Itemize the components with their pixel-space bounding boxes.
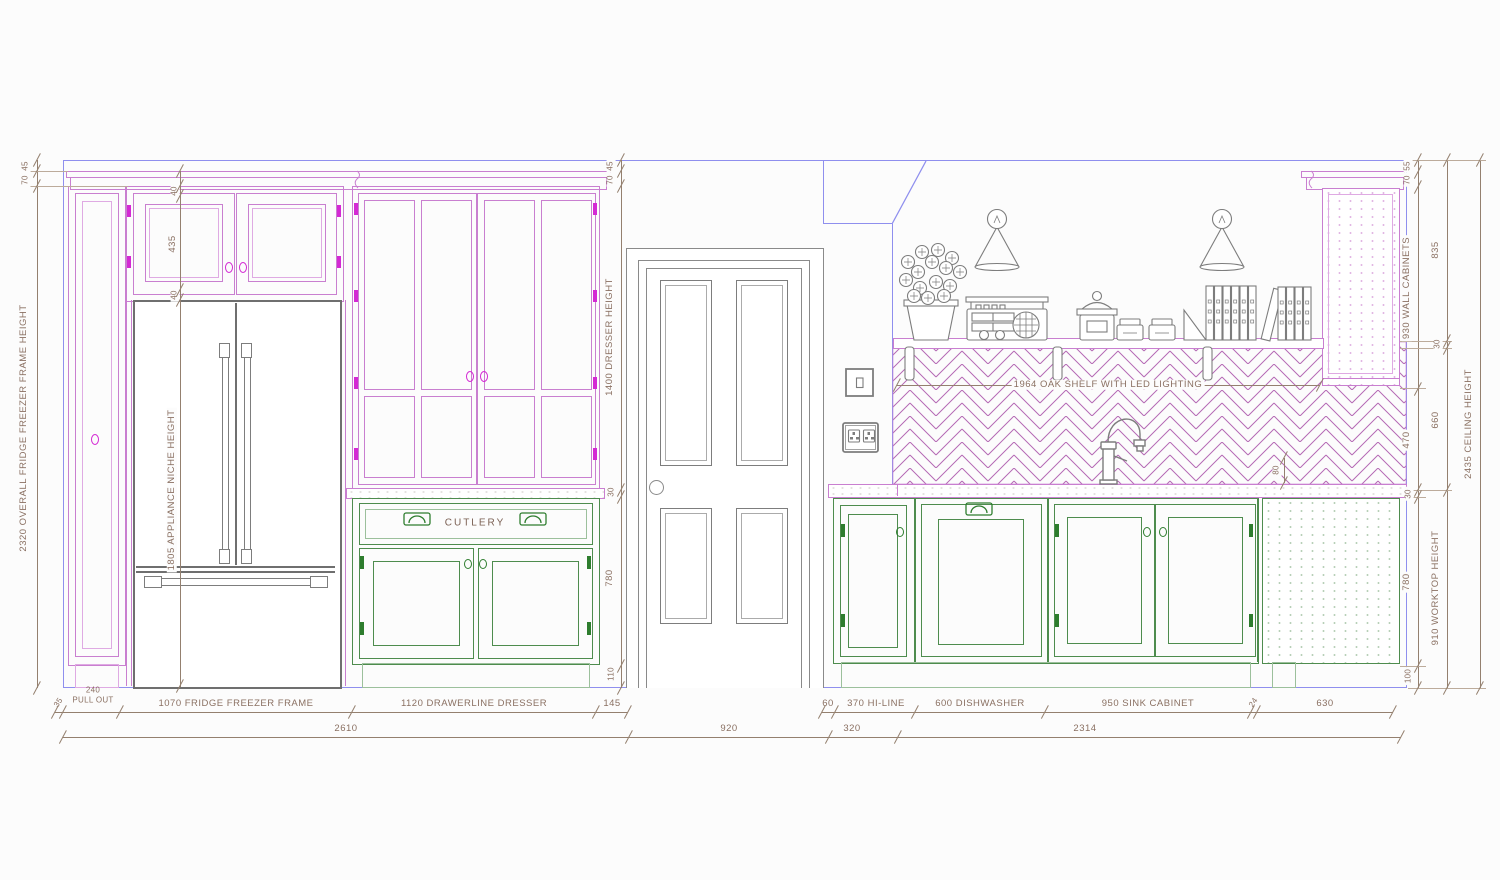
dim-line <box>1447 160 1448 688</box>
book-spine-detail <box>1225 310 1228 313</box>
power-socket-icon <box>843 423 878 452</box>
hinge-mark <box>593 377 597 389</box>
book-spine-detail <box>1280 321 1283 324</box>
cabinet-knob <box>239 262 247 273</box>
extension-line <box>1400 388 1426 389</box>
book-spine-detail <box>1251 310 1254 313</box>
radio-icon <box>966 297 1048 340</box>
dim-dishwasher: 600 DISHWASHER <box>935 699 1025 709</box>
book-spine-detail <box>1297 311 1300 314</box>
sink-knob <box>1159 527 1167 537</box>
hinge-mark <box>354 290 358 302</box>
tap-icon <box>1100 419 1145 484</box>
dim-r1-cornice: 70 <box>1404 173 1413 187</box>
dim-cab-door: 435 <box>168 233 178 254</box>
dim-sink-cabinet: 950 SINK CABINET <box>1102 699 1194 709</box>
dim-wall-cabinets: 930 WALL CABINETS <box>1402 235 1412 341</box>
hinge-mark <box>1249 524 1253 537</box>
books-icon <box>1184 286 1311 341</box>
base-knob <box>464 559 472 569</box>
pullout-knob <box>91 434 99 445</box>
dim-left-overall: 2320 OVERALL FRIDGE FREEZER FRAME HEIGHT <box>19 302 29 553</box>
dim-line <box>55 712 628 713</box>
hinge-mark <box>593 203 597 215</box>
book-spine-detail <box>1217 300 1220 303</box>
book-spine-detail <box>1234 300 1237 303</box>
book-spine-detail <box>1242 310 1245 313</box>
book-spine-detail <box>1306 321 1309 324</box>
dim-left-gap: 45 <box>22 159 31 173</box>
dim-line <box>63 737 1401 738</box>
dim-gap-width: 320 <box>843 724 860 734</box>
book-spine-detail <box>1251 300 1254 303</box>
book-spine-detail <box>1217 310 1220 313</box>
hinge-mark <box>593 290 597 302</box>
shelf-bracket <box>1053 347 1062 380</box>
cup-handle <box>520 513 546 525</box>
dim-fridge-frame: 1070 FRIDGE FREEZER FRAME <box>158 699 313 709</box>
extension-line <box>1400 348 1452 349</box>
dim-doorline-gap: 45 <box>607 159 616 173</box>
dim-appliance-niche: 1805 APPLIANCE NICHE HEIGHT <box>167 408 177 573</box>
book-spine-detail <box>1289 321 1292 324</box>
cup-handle <box>404 513 430 525</box>
dishwasher-cup-handle <box>966 503 992 515</box>
dim-r2-upper: 835 <box>1431 239 1441 260</box>
dim-line <box>621 160 622 688</box>
dim-r1-gap: 55 <box>1404 159 1413 173</box>
sink-knob <box>1143 527 1151 537</box>
dresser-knob <box>480 371 488 382</box>
dim-line <box>1418 160 1419 688</box>
book-spine-detail <box>1297 321 1300 324</box>
book-spine-detail <box>1289 311 1292 314</box>
dim-b1-end: 145 <box>603 699 620 709</box>
extension-line <box>30 186 128 187</box>
dim-door-width: 920 <box>720 724 737 734</box>
hinge-mark <box>841 614 845 627</box>
dim-line <box>180 171 181 687</box>
cornice-scribe <box>355 171 359 188</box>
dim-dresser-height: 1400 DRESSER HEIGHT <box>605 276 615 398</box>
dim-hiline: 370 HI-LINE <box>847 699 905 709</box>
book-spine-detail <box>1251 320 1254 323</box>
dim-pullout-value: 240 <box>86 687 100 696</box>
book-spine-detail <box>1217 320 1220 323</box>
book-spine-detail <box>1289 301 1292 304</box>
shelf-bracket <box>1203 347 1212 380</box>
jar-icon <box>1149 319 1175 340</box>
hinge-mark <box>360 556 364 569</box>
dim-worktop-height: 910 WORKTOP HEIGHT <box>1431 529 1441 648</box>
cornice-scribe <box>1309 171 1313 188</box>
hinge-mark <box>360 622 364 635</box>
dim-line <box>37 160 38 688</box>
cutlery-label: CUTLERY <box>445 518 506 529</box>
dim-r1-base: 780 <box>1402 571 1412 592</box>
hinge-mark <box>593 448 597 460</box>
dim-doorline-worktop: 30 <box>608 485 617 499</box>
dim-total-left: 2610 <box>334 724 357 734</box>
dim-line <box>822 712 1393 713</box>
book-spine-detail <box>1306 311 1309 314</box>
book-spine-detail <box>1208 320 1211 323</box>
hinge-mark <box>587 556 591 569</box>
book-spine-detail <box>1234 320 1237 323</box>
plant-icon <box>900 244 967 341</box>
hinge-mark <box>587 622 591 635</box>
hinge-mark <box>127 205 131 217</box>
book-spine-detail <box>1208 310 1211 313</box>
hiline-knob <box>896 527 904 537</box>
dim-doorline-plinth: 110 <box>608 665 617 683</box>
base-knob <box>479 559 487 569</box>
book-spine-detail <box>1280 301 1283 304</box>
dim-r2-shelf: 30 <box>1434 337 1443 351</box>
book-spine-detail <box>1280 311 1283 314</box>
hinge-mark <box>337 256 341 268</box>
book-spine-detail <box>1225 320 1228 323</box>
hinge-mark <box>337 205 341 217</box>
dim-r1-plinth: 100 <box>1405 667 1414 685</box>
accessories-layer <box>0 0 1500 880</box>
canister-icon <box>1077 292 1117 341</box>
dim-total-right: 2314 <box>1073 724 1096 734</box>
hinge-mark <box>1249 614 1253 627</box>
hinge-mark <box>354 448 358 460</box>
book-spine-detail <box>1242 300 1245 303</box>
book-spine-detail <box>1225 300 1228 303</box>
jar-icon <box>1117 319 1143 340</box>
book-spine-detail <box>1234 310 1237 313</box>
dim-doorline-base: 780 <box>605 567 615 588</box>
dim-worktop-overhang: 80 <box>1273 463 1282 477</box>
kitchen-elevation-canvas: CUTLERY <box>0 0 1500 880</box>
wall-light-icon <box>975 210 1019 271</box>
hinge-mark <box>841 524 845 537</box>
wall-light-icon <box>1200 210 1244 271</box>
cabinet-knob <box>225 262 233 273</box>
dim-ceiling-height: 2435 CEILING HEIGHT <box>1464 367 1474 481</box>
dim-drawerline-dresser: 1120 DRAWERLINE DRESSER <box>401 699 547 709</box>
book-spine-detail <box>1208 300 1211 303</box>
dim-splashback: 470 <box>1402 429 1412 450</box>
light-switch-icon <box>846 369 873 396</box>
dim-doorline-cornice: 70 <box>607 173 616 187</box>
dim-left-cornice: 70 <box>22 173 31 187</box>
dim-b2-end: 630 <box>1316 699 1333 709</box>
book-spine-detail <box>1242 320 1245 323</box>
dim-oak-shelf: 1964 OAK SHELF WITH LED LIGHTING <box>1012 380 1205 390</box>
hinge-mark <box>1055 614 1059 627</box>
dim-r2-mid: 660 <box>1431 409 1441 430</box>
dresser-knob <box>466 371 474 382</box>
dim-pullout-label: PULL OUT <box>72 697 113 706</box>
hinge-mark <box>1055 524 1059 537</box>
shelf-bracket <box>905 347 914 380</box>
book-spine-detail <box>1297 301 1300 304</box>
hinge-mark <box>354 377 358 389</box>
hinge-mark <box>127 256 131 268</box>
dim-line <box>1480 160 1481 688</box>
hinge-mark <box>354 203 358 215</box>
book-spine-detail <box>1306 301 1309 304</box>
dim-r1-worktop: 30 <box>1405 487 1414 501</box>
